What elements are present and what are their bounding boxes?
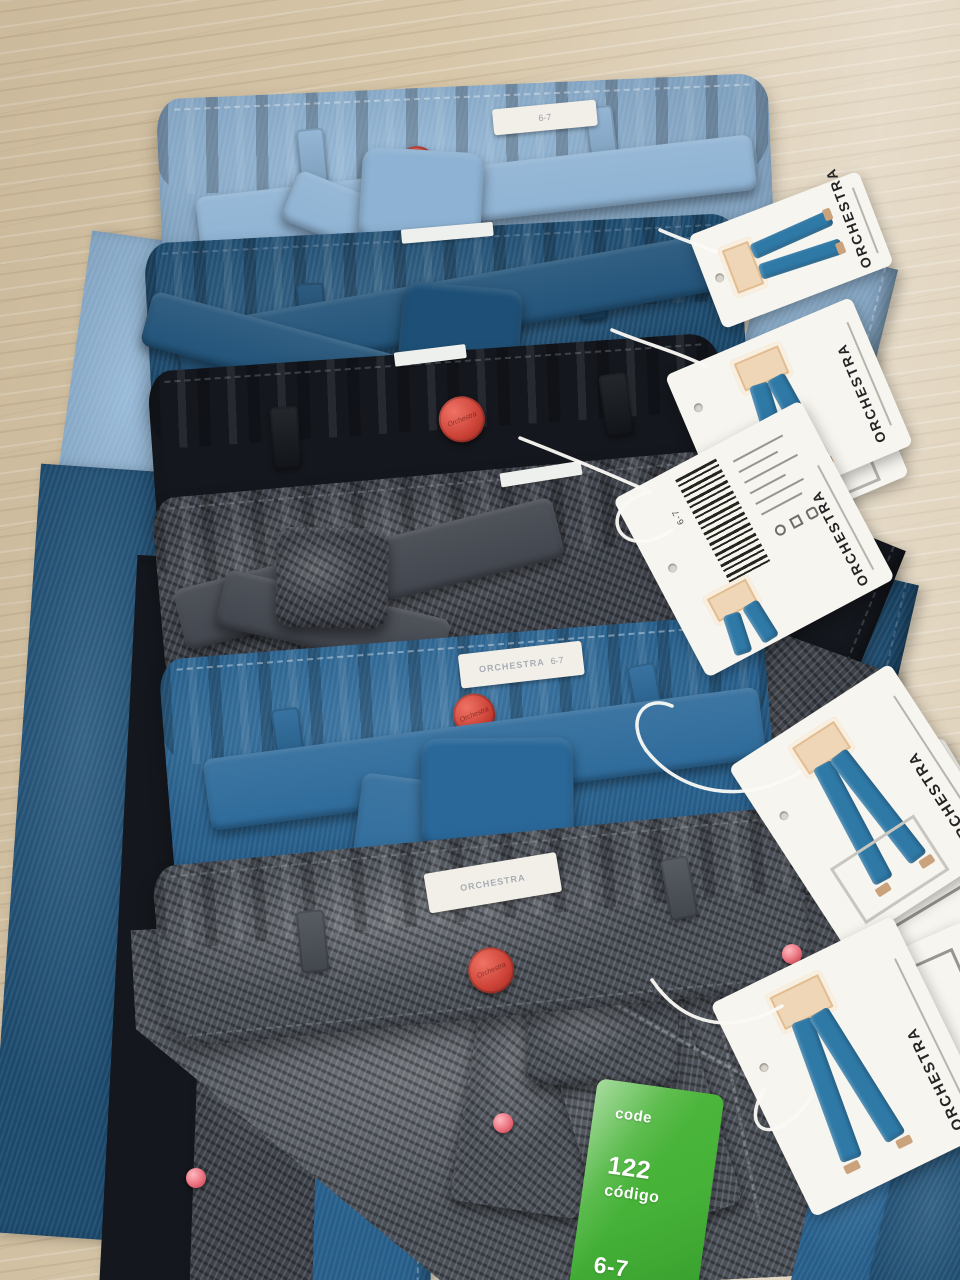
snap-button: Orchestra bbox=[437, 395, 486, 444]
belt-loop bbox=[598, 372, 634, 437]
tag-hole bbox=[778, 810, 790, 822]
stitch-line bbox=[175, 84, 750, 111]
belt-loop bbox=[296, 909, 330, 973]
sticker-size-value: 6-7 bbox=[570, 1248, 701, 1280]
tag-text-line bbox=[733, 435, 783, 463]
care-icon bbox=[773, 523, 788, 538]
snap-button: Orchestra bbox=[466, 945, 516, 995]
sticker-code-label: code bbox=[592, 1102, 721, 1137]
inner-brand-label: ORCHESTRA 6-7 bbox=[458, 641, 585, 689]
brand-text: ORCHESTRA bbox=[459, 872, 526, 893]
tie-belt-knot bbox=[275, 527, 389, 629]
tag-hole bbox=[693, 402, 705, 414]
snap-button-text: Orchestra bbox=[446, 410, 477, 428]
brand-text: ORCHESTRA bbox=[478, 657, 545, 674]
size-text: 6-7 bbox=[538, 112, 552, 123]
belt-loop bbox=[660, 855, 699, 921]
belt-loop bbox=[270, 406, 302, 470]
tag-hole bbox=[714, 272, 726, 284]
tag-text-line bbox=[744, 454, 798, 484]
tag-hole bbox=[667, 562, 679, 574]
tag-hole bbox=[758, 1062, 770, 1074]
jeans-flatlay-photo: 6-7 Orchestra Orchestra Orchestra bbox=[0, 0, 960, 1280]
illustration-foot bbox=[843, 1160, 861, 1175]
snap-button-text: Orchestra bbox=[459, 705, 490, 723]
inner-size-label: 6-7 bbox=[492, 100, 598, 136]
tag-text-line bbox=[755, 478, 804, 505]
care-icon bbox=[789, 514, 804, 529]
size-text: 6-7 bbox=[550, 655, 564, 666]
pink-rivet bbox=[186, 1168, 206, 1188]
inner-brand-label: ORCHESTRA bbox=[423, 852, 562, 914]
snap-button-text: Orchestra bbox=[476, 961, 507, 980]
